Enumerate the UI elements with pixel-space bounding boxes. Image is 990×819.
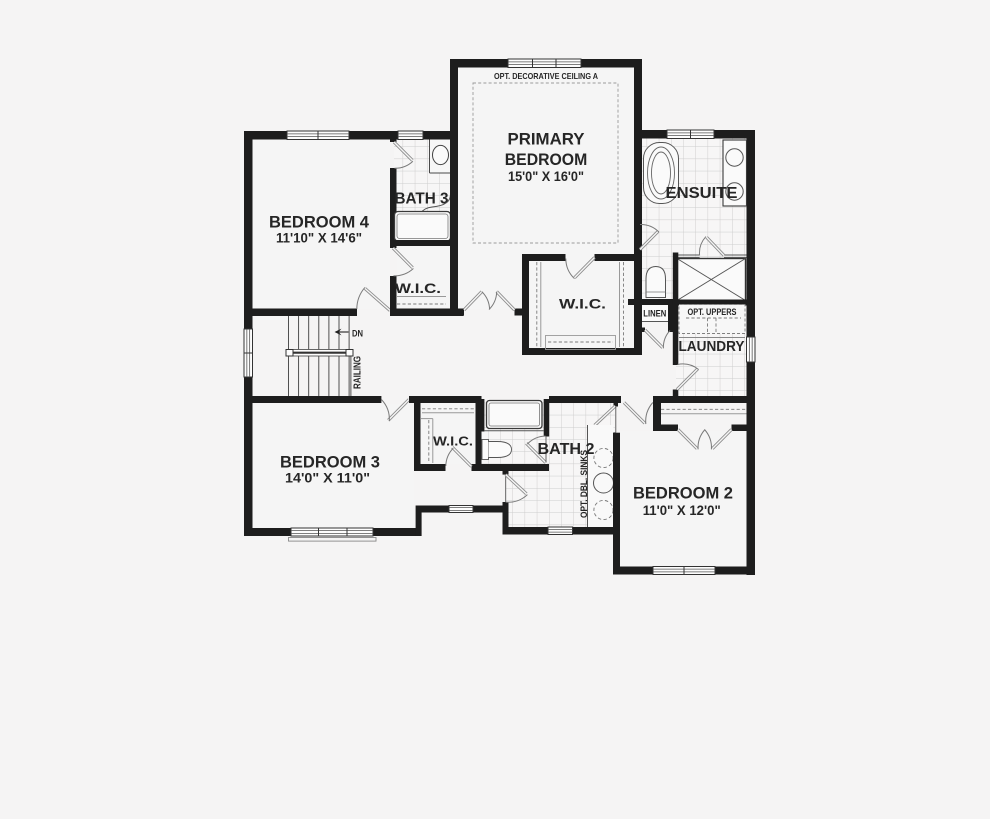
svg-text:W.I.C.: W.I.C. xyxy=(395,281,441,296)
svg-text:BEDROOM 2: BEDROOM 2 xyxy=(633,483,733,502)
svg-text:11'0" X 12'0": 11'0" X 12'0" xyxy=(643,502,721,518)
svg-text:OPT. DECORATIVE CEILING A: OPT. DECORATIVE CEILING A xyxy=(494,72,598,81)
svg-text:15'0" X 16'0": 15'0" X 16'0" xyxy=(508,169,584,184)
svg-text:RAILING: RAILING xyxy=(353,356,364,389)
svg-text:W.I.C.: W.I.C. xyxy=(433,434,473,449)
svg-text:BATH 3: BATH 3 xyxy=(395,191,449,208)
svg-text:PRIMARY: PRIMARY xyxy=(508,131,585,149)
svg-text:ENSUITE: ENSUITE xyxy=(666,185,738,202)
svg-text:LINEN: LINEN xyxy=(643,308,666,318)
svg-text:W.I.C.: W.I.C. xyxy=(559,296,606,312)
svg-text:14'0" X 11'0": 14'0" X 11'0" xyxy=(285,470,370,486)
svg-text:BEDROOM 4: BEDROOM 4 xyxy=(269,212,370,231)
svg-text:LAUNDRY: LAUNDRY xyxy=(679,338,745,355)
svg-text:DN: DN xyxy=(352,328,363,339)
svg-text:11'10" X 14'6": 11'10" X 14'6" xyxy=(276,230,362,246)
svg-text:BEDROOM: BEDROOM xyxy=(505,151,588,169)
svg-text:OPT. UPPERS: OPT. UPPERS xyxy=(688,307,737,317)
svg-text:OPT. DBL. SINKS: OPT. DBL. SINKS xyxy=(579,450,589,518)
